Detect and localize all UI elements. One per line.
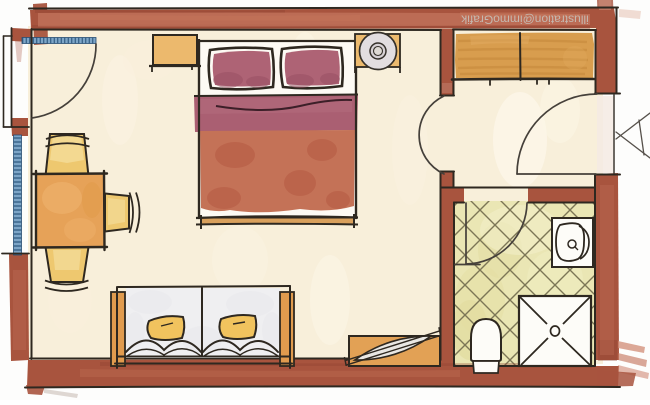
svg-text:illustration@immoGrafik: illustration@immoGrafik — [460, 12, 589, 26]
